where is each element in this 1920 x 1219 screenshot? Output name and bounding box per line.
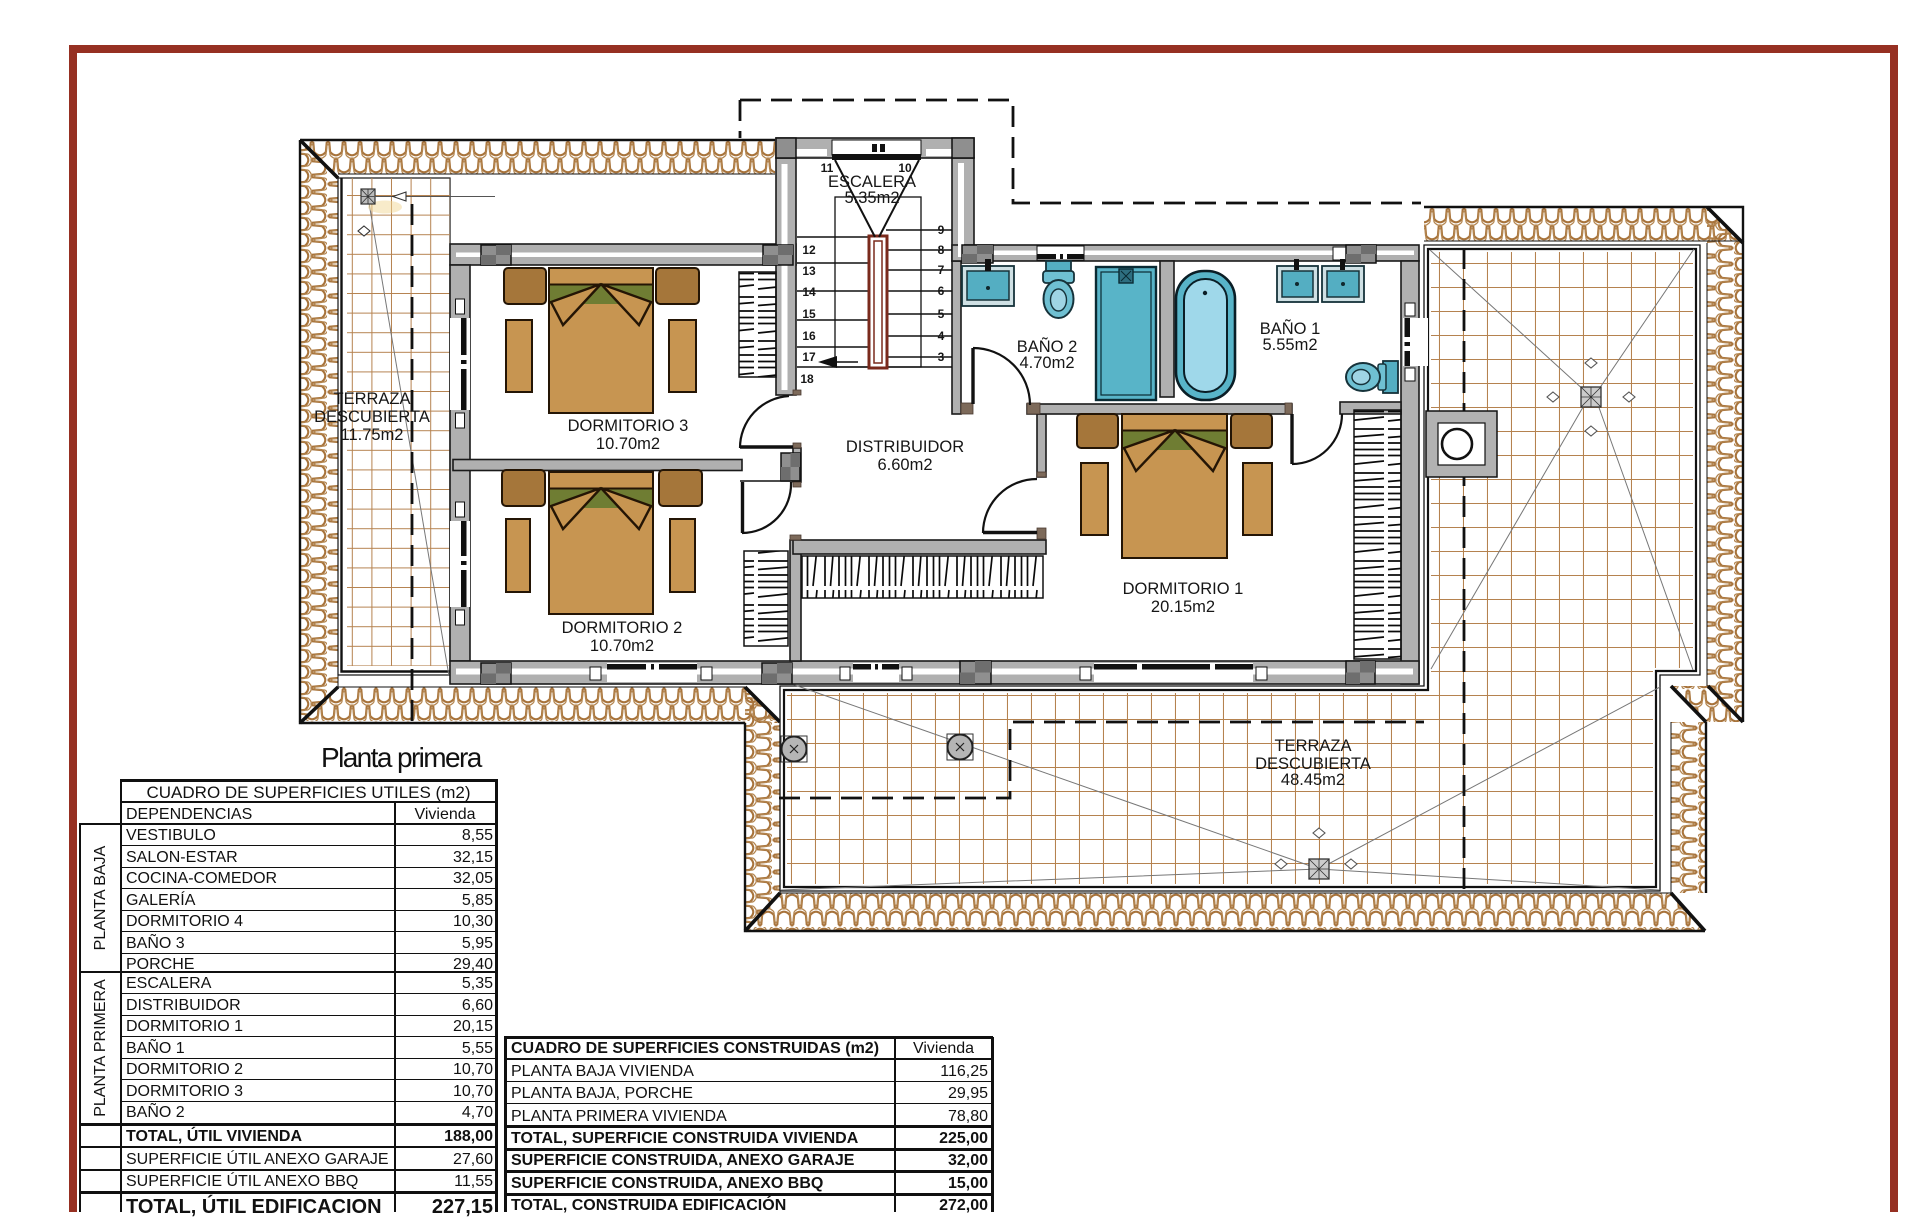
svg-text:4.70m2: 4.70m2 [1019, 354, 1074, 372]
svg-text:DORMITORIO 3: DORMITORIO 3 [568, 417, 689, 435]
svg-text:3: 3 [938, 350, 945, 364]
svg-text:10.70m2: 10.70m2 [596, 435, 660, 453]
svg-text:48.45m2: 48.45m2 [1281, 771, 1345, 789]
svg-text:DORMITORIO 2: DORMITORIO 2 [562, 619, 683, 637]
svg-text:11.75m2: 11.75m2 [341, 426, 404, 444]
svg-text:10.70m2: 10.70m2 [590, 637, 654, 655]
svg-text:TERRAZA: TERRAZA [1274, 737, 1351, 755]
svg-text:20.15m2: 20.15m2 [1151, 598, 1215, 616]
svg-text:DORMITORIO 1: DORMITORIO 1 [1123, 580, 1244, 598]
svg-text:BAÑO 2: BAÑO 2 [1017, 336, 1078, 356]
svg-text:5: 5 [938, 307, 945, 321]
svg-text:10: 10 [898, 161, 912, 175]
svg-text:BAÑO 1: BAÑO 1 [1260, 318, 1321, 338]
svg-text:5.55m2: 5.55m2 [1262, 336, 1317, 354]
svg-text:DESCUBIERTA: DESCUBIERTA [314, 408, 430, 426]
svg-text:15: 15 [802, 307, 816, 321]
svg-text:13: 13 [802, 264, 816, 278]
svg-text:14: 14 [802, 285, 816, 299]
svg-text:9: 9 [938, 223, 945, 237]
svg-text:DISTRIBUIDOR: DISTRIBUIDOR [846, 438, 964, 456]
svg-text:7: 7 [938, 263, 945, 277]
svg-text:18: 18 [800, 372, 814, 386]
svg-text:TERRAZA: TERRAZA [333, 390, 410, 408]
svg-text:6: 6 [938, 284, 945, 298]
svg-text:6.60m2: 6.60m2 [877, 456, 932, 474]
svg-text:12: 12 [802, 243, 816, 257]
svg-text:16: 16 [802, 329, 816, 343]
svg-text:5.35m2: 5.35m2 [844, 189, 899, 207]
svg-text:8: 8 [938, 243, 945, 257]
svg-text:17: 17 [802, 350, 816, 364]
svg-text:4: 4 [938, 329, 945, 343]
svg-text:11: 11 [821, 161, 834, 175]
